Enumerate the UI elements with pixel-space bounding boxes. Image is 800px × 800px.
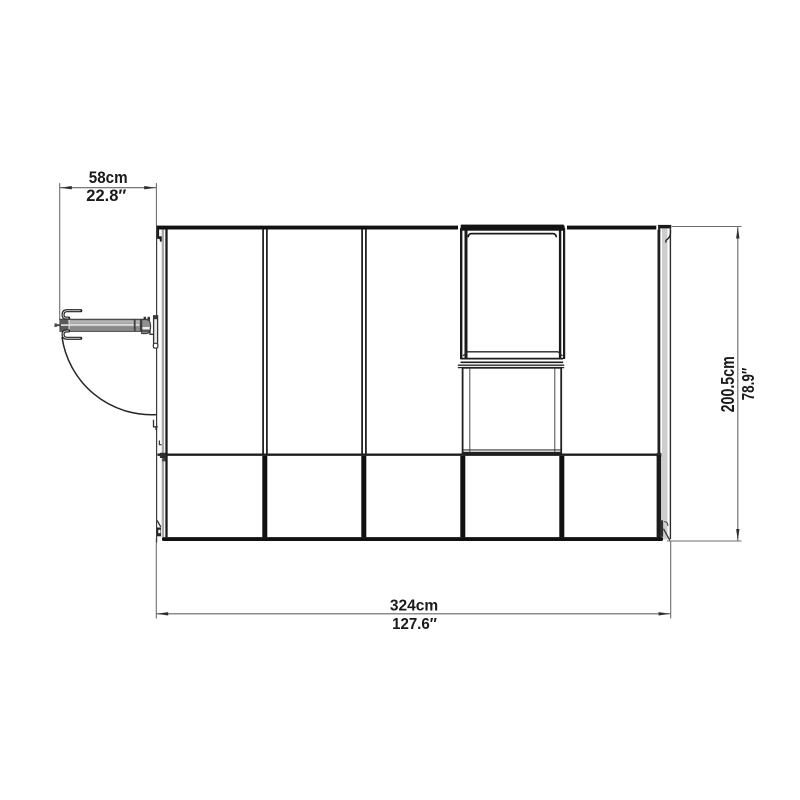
svg-text:78.9″: 78.9″: [739, 367, 758, 400]
svg-text:58cm: 58cm: [89, 169, 128, 187]
svg-text:324cm: 324cm: [390, 598, 438, 615]
svg-text:200.5cm: 200.5cm: [718, 356, 738, 412]
svg-text:127.6″: 127.6″: [392, 616, 437, 633]
svg-text:22.8″: 22.8″: [86, 187, 126, 205]
